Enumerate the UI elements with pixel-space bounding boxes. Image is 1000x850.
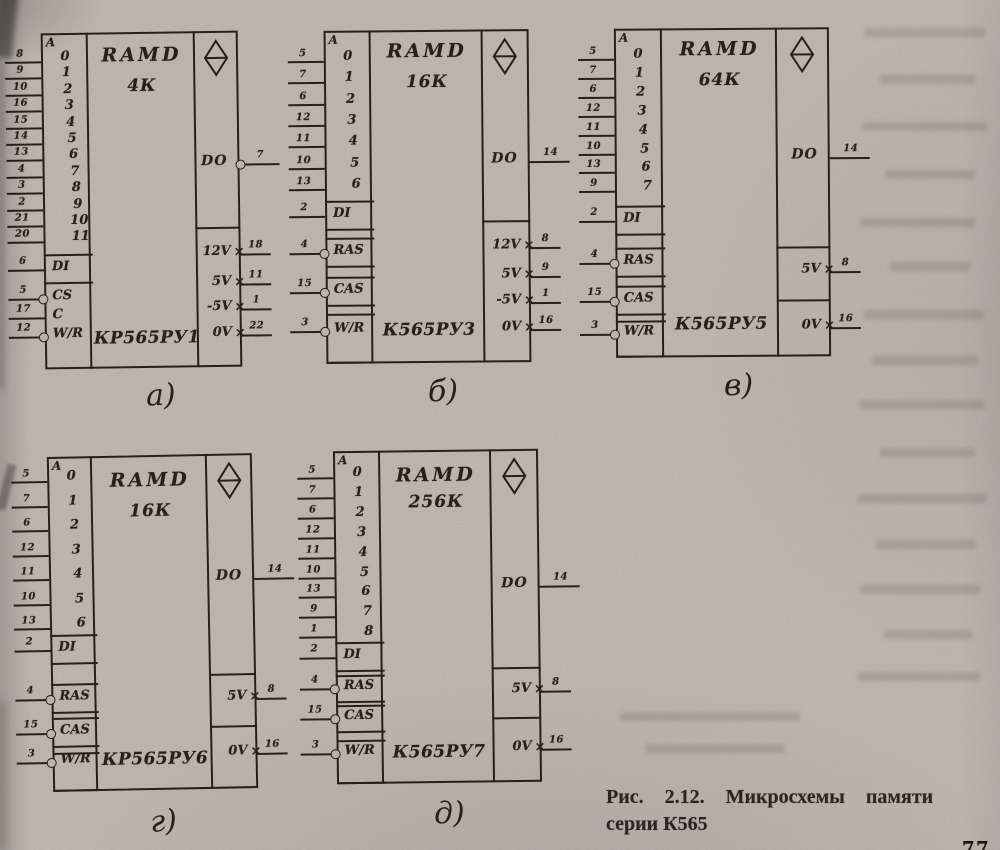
pin-number: 4 — [300, 675, 330, 685]
address-bit-label: 6 — [344, 177, 368, 190]
address-bit-label: 4 — [351, 545, 375, 558]
address-bit-label: 1 — [337, 71, 361, 84]
control-label-ras: RAS — [333, 243, 372, 256]
chip-capacity-label: 256К — [381, 493, 492, 511]
pin-number: 14 — [536, 148, 566, 158]
do-label: DO — [493, 576, 528, 590]
pin-lead — [12, 505, 48, 508]
chip-type-label: RAMD — [92, 470, 207, 491]
pin-number: 12 — [12, 543, 42, 554]
address-bit-label: 4 — [631, 123, 655, 136]
pin-lead — [6, 127, 42, 130]
pin-lead — [288, 103, 324, 105]
bleed-through-line — [884, 630, 972, 639]
pin-number: 16 — [6, 99, 36, 109]
pin-number: 10 — [289, 155, 319, 165]
chip-capacity-label: 16К — [371, 74, 483, 92]
pin-number: 7 — [578, 66, 608, 76]
pin-lead — [297, 477, 333, 479]
inversion-bubble — [609, 259, 619, 269]
inversion-bubble — [330, 684, 340, 694]
scanned-book-page: Рис. 2.12. Микросхемы памяти серии К565 … — [0, 0, 1000, 850]
ram-diamond-icon — [202, 39, 229, 77]
address-bit-label: 0 — [53, 50, 77, 63]
power-section-line — [482, 220, 530, 222]
pin-number: 4 — [6, 164, 36, 174]
power-label-5v: 5V — [485, 267, 521, 280]
control-label-cs: CS — [52, 289, 91, 303]
address-bit-label: 2 — [338, 92, 362, 105]
address-bit-label: 3 — [340, 113, 364, 126]
address-bit-label: 7 — [635, 180, 659, 193]
caption-line-2: серии К565 — [606, 811, 998, 838]
bleed-through-line — [860, 400, 985, 409]
pin-number: 2 — [579, 208, 609, 218]
pin-lead — [531, 329, 561, 331]
pin-number: 10 — [579, 141, 609, 151]
pin-number: 11 — [579, 122, 609, 132]
pin-number: 3 — [7, 181, 37, 191]
pin-number: 12 — [578, 103, 608, 113]
pin-number: 14 — [6, 131, 36, 141]
inversion-bubble — [39, 332, 49, 342]
pin-lead — [6, 143, 42, 146]
right-column — [193, 31, 241, 368]
pin-number: 13 — [289, 177, 319, 187]
pin-number: 16 — [833, 314, 859, 324]
pin-number: 6 — [12, 518, 42, 529]
address-bit-label: 2 — [629, 85, 653, 98]
address-header-label: A — [46, 36, 55, 48]
power-label-0v: 0V — [495, 740, 532, 753]
pin-lead — [288, 82, 324, 84]
pin-number: 3 — [16, 749, 46, 760]
chip-v: A05172631241151061379DI2RAS4CAS15W/R3RAM… — [614, 27, 831, 357]
pin-number: 9 — [533, 263, 559, 273]
pin-lead — [298, 497, 334, 499]
address-bit-label: 3 — [64, 543, 88, 556]
chip-sub-label-b: б) — [428, 374, 459, 410]
pin-lead — [5, 61, 41, 64]
pin-lead — [531, 276, 561, 278]
address-bit-label: 2 — [348, 506, 372, 519]
bleed-through-line — [864, 310, 984, 319]
pin-lead — [289, 216, 325, 218]
control-label-ras: RAS — [623, 253, 663, 266]
right-column — [489, 449, 540, 783]
chip-sub-label-d: д) — [433, 795, 465, 831]
power-label-0v: 0V — [212, 744, 247, 758]
power-section-line — [776, 246, 830, 248]
page-number-mark: 77 — [962, 837, 990, 850]
address-bit-label: 9 — [66, 197, 90, 210]
pin-lead — [289, 167, 325, 169]
address-bit-label: 0 — [626, 48, 650, 61]
address-bit-label: 6 — [69, 616, 93, 629]
pin-number: 14 — [836, 144, 866, 154]
pin-number: 14 — [260, 564, 290, 575]
pin-number: 7 — [12, 494, 42, 505]
inversion-bubble — [320, 327, 330, 337]
address-bit-label: 6 — [61, 148, 85, 161]
bleed-through-line — [890, 262, 970, 271]
pin-number: 4 — [579, 250, 609, 260]
control-label-cas: CAS — [624, 291, 664, 304]
pin-number: 16 — [543, 735, 569, 745]
pin-lead — [242, 334, 272, 336]
address-bit-label: 1 — [347, 486, 371, 499]
do-label: DO — [196, 154, 227, 168]
control-label-w-r: W/R — [345, 744, 384, 757]
inversion-bubble — [319, 249, 329, 259]
pin-number: 12 — [298, 525, 328, 535]
bleed-through-line — [620, 712, 800, 721]
inversion-bubble — [331, 749, 341, 759]
pin-lead — [299, 577, 335, 579]
power-label-5v: 5V — [198, 275, 231, 288]
inversion-bubble — [610, 297, 620, 307]
pin-number: 5 — [578, 47, 608, 57]
bleed-through-line — [880, 448, 975, 457]
pin-lead — [254, 577, 294, 580]
ram-diamond-icon — [789, 35, 815, 73]
pin-lead — [578, 78, 614, 80]
pin-number: 3 — [580, 321, 610, 331]
pin-number: 13 — [14, 616, 44, 627]
pin-number: 17 — [8, 304, 38, 314]
pin-lead — [289, 189, 325, 191]
pin-lead — [540, 585, 580, 587]
pin-lead — [579, 153, 615, 155]
address-header-label: A — [329, 34, 338, 46]
pin-lead — [6, 111, 42, 114]
pin-number: 15 — [580, 288, 610, 298]
pin-lead — [579, 134, 615, 136]
address-bit-label: 8 — [64, 181, 88, 194]
address-bit-label: 5 — [60, 132, 84, 145]
chip-type-label: RAMD — [380, 465, 491, 485]
pin-number: 12 — [9, 323, 39, 333]
pin-number: 15 — [290, 279, 320, 289]
control-label-cas: CAS — [344, 709, 383, 722]
power-label-12v: 12V — [484, 238, 520, 251]
pin-number: 8 — [543, 677, 569, 687]
power-label-5v: 5V — [494, 682, 531, 695]
bleed-through-line — [885, 170, 975, 179]
pin-lead — [7, 209, 43, 212]
pin-lead — [8, 242, 44, 245]
chip-capacity-label: 64К — [662, 72, 777, 90]
pin-number: 22 — [244, 321, 270, 331]
pin-lead — [12, 530, 48, 533]
pin-number: 3 — [290, 318, 320, 328]
chip-capacity-label: 16К — [93, 502, 208, 521]
pin-number: 11 — [298, 545, 328, 555]
pin-lead — [579, 191, 615, 193]
pin-number: 7 — [288, 70, 318, 80]
pin-lead — [531, 302, 561, 304]
power-label-12v: 12V — [198, 245, 231, 258]
pin-number: 3 — [301, 740, 331, 750]
pin-lead — [13, 554, 49, 557]
control-label-w-r: W/R — [53, 327, 92, 341]
address-bit-label: 7 — [355, 605, 379, 618]
pin-lead — [5, 78, 41, 81]
pin-number: 15 — [6, 115, 36, 125]
pin-number: 8 — [532, 234, 558, 244]
pin-lead — [241, 283, 271, 285]
address-bit-label: 4 — [341, 135, 365, 148]
right-column — [205, 453, 256, 789]
pin-lead — [8, 269, 44, 272]
pin-lead — [298, 517, 334, 519]
pin-lead — [258, 752, 288, 755]
address-header-label: A — [338, 454, 347, 466]
pin-number: 6 — [578, 85, 608, 95]
address-bit-label: 6 — [354, 585, 378, 598]
pin-number: 5 — [288, 49, 318, 59]
pin-number: 10 — [298, 565, 328, 575]
pin-number: 6 — [288, 92, 318, 102]
bleed-through-line — [645, 744, 785, 753]
chip-type-label: RAMD — [88, 45, 195, 65]
pin-lead — [241, 253, 271, 255]
chip-part-number: КР565РУ1 — [94, 329, 197, 347]
pin-number: 4 — [15, 686, 45, 697]
power-label-0v: 0V — [199, 326, 232, 339]
pin-number: 11 — [243, 270, 269, 280]
chip-capacity-label: 4К — [88, 77, 195, 95]
address-bit-label: 5 — [67, 592, 91, 605]
pin-lead — [11, 481, 47, 484]
pin-number: 14 — [545, 572, 575, 582]
pin-lead — [831, 327, 861, 329]
pin-number: 13 — [579, 160, 609, 170]
address-bit-label: 7 — [63, 165, 87, 178]
pin-number: 2 — [7, 197, 37, 207]
power-label-5v: 5V — [211, 689, 246, 703]
do-label: DO — [778, 147, 818, 161]
scan-smudge — [0, 60, 5, 390]
address-bit-label: 4 — [66, 567, 90, 580]
bleed-through-line — [860, 218, 975, 227]
power-label-0v: 0V — [485, 320, 521, 333]
pin-number: 2 — [289, 203, 319, 213]
pin-lead — [13, 579, 49, 582]
control-label-di: DI — [623, 211, 663, 224]
pin-lead — [288, 61, 324, 63]
control-label-w-r: W/R — [334, 321, 373, 334]
pin-lead — [830, 157, 870, 159]
power-label-neg5v: -5V — [198, 300, 231, 313]
address-bit-label: 10 — [67, 214, 91, 227]
pin-lead — [6, 94, 42, 97]
pin-number: 9 — [299, 605, 329, 615]
address-bit-label: 3 — [57, 99, 81, 112]
pin-number: 13 — [6, 148, 36, 158]
bleed-through-line — [860, 585, 980, 594]
control-label-ras: RAS — [59, 689, 96, 703]
pin-lead — [15, 650, 51, 653]
chip-type-label: RAMD — [371, 42, 483, 62]
address-bit-label: 2 — [62, 518, 86, 531]
do-label: DO — [484, 151, 518, 165]
chip-part-number: К565РУ7 — [386, 743, 493, 761]
pin-number: 9 — [5, 66, 35, 76]
pin-lead — [7, 176, 43, 179]
pin-number: 5 — [297, 465, 327, 475]
pin-number: 1 — [533, 289, 559, 299]
ram-diamond-icon — [215, 461, 242, 499]
pin-number: 15 — [16, 720, 46, 731]
chip-a: A081921031641551461374839210211120DI6CS5… — [41, 31, 243, 370]
figure-caption: Рис. 2.12. Микросхемы памяти серии К565 — [606, 784, 998, 838]
chip-sub-label-g: г) — [149, 803, 178, 840]
right-column — [775, 27, 829, 356]
chip-part-number: КР565РУ6 — [99, 750, 210, 769]
address-header-label: A — [619, 32, 628, 44]
chip-sub-label-v: в) — [724, 368, 754, 404]
control-label-di: DI — [58, 640, 95, 654]
control-label-di: DI — [343, 648, 382, 661]
pin-lead — [298, 537, 334, 539]
inversion-bubble — [320, 288, 330, 298]
chip-g: A051726312411510613DI2RAS4CAS15W/R3RAMD1… — [47, 453, 258, 792]
pin-lead — [579, 172, 615, 174]
inversion-bubble — [47, 758, 57, 768]
chip-b: A051726312411510613DI2RAS4CAS15W/R3RAMD1… — [324, 29, 532, 364]
address-bit-label: 1 — [61, 494, 85, 507]
address-bit-label: 4 — [59, 115, 83, 128]
pin-lead — [541, 690, 571, 692]
address-bit-label: 3 — [630, 104, 654, 117]
pin-number: 8 — [5, 49, 35, 59]
pin-number: 5 — [8, 285, 38, 295]
pin-lead — [14, 628, 50, 631]
control-label-w-r: W/R — [624, 324, 664, 337]
inversion-bubble — [610, 330, 620, 340]
ram-diamond-icon — [501, 457, 527, 495]
power-label-5v: 5V — [778, 262, 820, 275]
chip-type-label: RAMD — [662, 40, 777, 60]
pin-lead — [578, 97, 614, 99]
inversion-bubble — [235, 160, 245, 170]
chip-part-number: К565РУ5 — [666, 316, 777, 334]
bleed-through-line — [862, 122, 987, 131]
pin-number: 16 — [259, 739, 285, 749]
scan-smudge — [0, 700, 8, 850]
chip-part-number: К565РУ3 — [375, 322, 483, 340]
pin-lead — [6, 160, 42, 163]
pin-lead — [542, 748, 572, 750]
pin-number: 15 — [300, 705, 330, 715]
pin-lead — [579, 221, 615, 223]
bleed-through-line — [876, 540, 976, 549]
address-bit-label: 5 — [633, 142, 657, 155]
pin-lead — [299, 657, 335, 659]
pin-lead — [288, 125, 324, 127]
control-label-ras: RAS — [344, 679, 383, 692]
pin-lead — [299, 597, 335, 599]
chip-d: A0517263124115106137981DI2RAS4CAS15W/R3R… — [333, 449, 542, 784]
address-bit-label: 11 — [69, 230, 93, 243]
pin-number: 5 — [11, 469, 41, 480]
address-bit-label: 3 — [349, 525, 373, 538]
control-label-cas: CAS — [334, 282, 373, 295]
power-label-neg5v: -5V — [485, 293, 521, 306]
pin-number: 6 — [8, 256, 38, 266]
pin-lead — [530, 161, 570, 163]
bleed-through-line — [858, 494, 986, 503]
pin-number: 4 — [289, 240, 319, 250]
pin-number: 6 — [298, 505, 328, 515]
do-label: DO — [209, 568, 242, 583]
pin-lead — [299, 617, 335, 619]
address-bit-label: 8 — [357, 625, 381, 638]
control-label-c: C — [53, 308, 92, 322]
control-label-cas: CAS — [60, 723, 97, 737]
address-bit-label: 2 — [56, 83, 80, 96]
pin-number: 7 — [297, 485, 327, 495]
pin-number: 20 — [7, 230, 37, 240]
pin-number: 10 — [5, 82, 35, 92]
right-column — [481, 29, 530, 362]
bleed-through-line — [872, 356, 977, 365]
control-label-di: DI — [52, 260, 91, 274]
pin-number: 10 — [13, 592, 43, 603]
pin-lead — [242, 308, 272, 310]
pin-number: 9 — [579, 179, 609, 189]
bleed-through-line — [858, 672, 980, 681]
address-bit-label: 5 — [343, 156, 367, 169]
pin-number: 7 — [245, 150, 275, 160]
pin-number: 18 — [243, 240, 269, 250]
address-bit-label: 6 — [634, 161, 658, 174]
pin-lead — [831, 271, 861, 273]
bleed-through-line — [880, 75, 975, 84]
pin-lead — [298, 557, 334, 559]
pin-lead — [530, 247, 560, 249]
pin-number: 2 — [14, 637, 44, 648]
bleed-through-line — [865, 28, 985, 37]
pin-lead — [14, 603, 50, 606]
power-section-line — [777, 299, 831, 301]
pin-lead — [7, 225, 43, 228]
address-bit-label: 5 — [352, 565, 376, 578]
pin-number: 1 — [243, 295, 269, 305]
power-label-0v: 0V — [779, 318, 821, 331]
pin-lead — [9, 317, 45, 320]
pin-number: 12 — [288, 113, 318, 123]
pin-lead — [299, 636, 335, 638]
pin-lead — [256, 697, 286, 700]
control-label-w-r: W/R — [60, 752, 97, 766]
chip-sub-label-a: а) — [145, 377, 176, 413]
pin-lead — [578, 59, 614, 61]
address-bit-label: 1 — [54, 66, 78, 79]
address-bit-label: 1 — [627, 66, 651, 79]
inversion-bubble — [330, 714, 340, 724]
pin-number: 16 — [533, 316, 559, 326]
address-bit-label: 0 — [336, 50, 360, 63]
pin-lead — [7, 193, 43, 196]
pin-lead — [578, 115, 614, 117]
pin-number: 21 — [7, 213, 37, 223]
caption-line-1: Рис. 2.12. Микросхемы памяти — [606, 784, 998, 811]
address-bit-label: 0 — [59, 469, 83, 482]
pin-number: 1 — [299, 625, 329, 635]
pin-number: 13 — [299, 585, 329, 595]
